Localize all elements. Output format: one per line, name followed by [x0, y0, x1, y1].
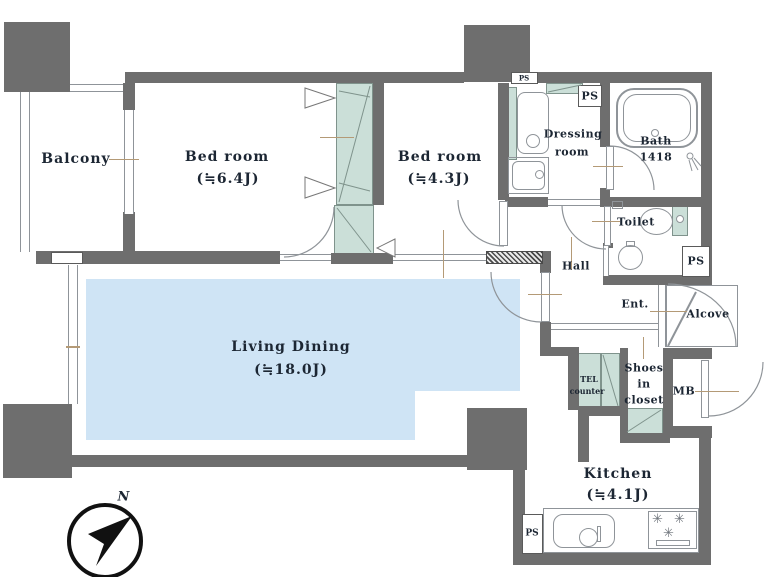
- floor-plan: ✳ ✳ ✳ N Balcony Bed room (≒6.4J) Bed roo…: [0, 0, 773, 577]
- wall-mb-left: [663, 348, 673, 437]
- kitchen-size: (≒4.1J): [587, 488, 650, 502]
- kitchen-label: Kitchen: [584, 467, 653, 481]
- dressing-label-line2: room: [555, 147, 589, 158]
- ps-label-toilet: PS: [687, 256, 704, 267]
- hall-label: Hall: [562, 261, 590, 272]
- kitchen-sink-basin: [579, 528, 598, 547]
- compass-north-label: N: [118, 491, 131, 504]
- living-size: (≒18.0J): [254, 363, 328, 377]
- bath-size: 1418: [640, 152, 673, 163]
- shoes-lower-line: [625, 408, 663, 434]
- closet-upper-lines: [336, 83, 373, 205]
- sliding-door-rail: [486, 251, 543, 264]
- leader-shoes-closet: [643, 337, 644, 359]
- entry-closet-line: [601, 353, 620, 408]
- wall-kitchen-bottom: [513, 553, 711, 565]
- wall-closet-right: [373, 83, 384, 205]
- ps-label-kitchen: PS: [525, 530, 538, 539]
- living-dining-floor: [86, 279, 415, 440]
- entrance-frame: [658, 285, 666, 347]
- dressing-shelf-line: [546, 83, 583, 94]
- bedroom1-size: (≒6.4J): [197, 172, 260, 186]
- door-arc-meter-box: [709, 362, 763, 416]
- washbasin-tap: [626, 241, 635, 247]
- meter-box-label: MB: [673, 386, 695, 397]
- closet-lower-lines: [334, 205, 374, 255]
- washbasin: [618, 245, 643, 270]
- door-arc-closet-lower: [284, 207, 334, 257]
- bath-label: Bath: [640, 136, 672, 147]
- toilet-tank-button: [676, 215, 684, 223]
- living-window-left: [68, 265, 78, 404]
- wall-bed1-left-stub-bottom: [123, 212, 135, 252]
- wall-top-bedrooms: [125, 72, 464, 83]
- balcony-rail: [20, 92, 30, 252]
- washbasin-edge: [603, 246, 609, 276]
- leader-closet: [320, 137, 354, 138]
- shoes-closet-label-line3: closet: [624, 395, 664, 406]
- shoes-closet-label-line2: in: [637, 379, 650, 390]
- wall-kitchen-top-left: [578, 406, 589, 462]
- compass-needle-icon: [88, 516, 132, 566]
- pillar-center: [467, 408, 527, 470]
- opening-bedroom2-living: [393, 254, 488, 261]
- wall-bed1-left-stub-top: [123, 83, 135, 110]
- alcove-label: Alcove: [686, 309, 729, 320]
- leader-hall-door: [528, 294, 562, 295]
- bedroom2-label: Bed room: [398, 150, 482, 164]
- wall-kitchen-right: [699, 426, 711, 565]
- living-label: Living Dining: [231, 340, 350, 354]
- leader-meter-box: [695, 391, 739, 392]
- vanity-basin: [526, 134, 540, 148]
- leader-alcove: [650, 311, 687, 312]
- balcony-top-connector: [70, 84, 123, 92]
- tel-counter-label-line1: TEL: [580, 375, 598, 383]
- folding-door-icon: [375, 236, 397, 258]
- ps-label-wall-small: PS: [519, 75, 529, 82]
- washing-machine-dial: [535, 170, 544, 179]
- door-leaf-hall-living: [541, 272, 550, 322]
- leader-bath-door: [593, 166, 623, 167]
- dressing-label-line1: Dressing: [544, 129, 603, 140]
- toilet-label: Toilet: [617, 217, 655, 228]
- leader-living-window: [66, 346, 80, 348]
- folding-door-icon: [303, 174, 337, 200]
- wall-tel-left: [568, 353, 579, 410]
- pillar-bottom-left: [3, 404, 72, 478]
- bedroom1-window: [124, 110, 134, 214]
- leader-balcony: [109, 159, 139, 160]
- wall-hall-left-bottom: [540, 322, 551, 350]
- shoes-closet-label-line1: Shoes: [625, 363, 664, 374]
- wall-top-right: [530, 72, 712, 83]
- entrance-step: [551, 323, 658, 330]
- kitchen-faucet: [597, 526, 601, 542]
- leader-bedroom2-opening: [443, 230, 444, 278]
- door-arc-toilet: [562, 205, 606, 249]
- stove-burner-icon: ✳: [674, 513, 685, 526]
- balcony-gate: [51, 252, 83, 264]
- bedroom1-label: Bed room: [185, 150, 269, 164]
- stove-burner-icon: ✳: [663, 527, 674, 540]
- ps-label-dressing: PS: [581, 91, 598, 102]
- toilet-shelf: [612, 201, 623, 209]
- wall-living-south: [70, 455, 467, 467]
- door-arc-bedroom2: [458, 200, 504, 246]
- shower-icon: [684, 150, 702, 174]
- wall-balcony-end: [36, 251, 51, 264]
- compass: [60, 496, 152, 577]
- tel-counter-label-line2: counter: [570, 387, 605, 395]
- leader-toilet: [592, 221, 620, 222]
- bedroom2-size: (≒4.3J): [408, 172, 471, 186]
- folding-door-icon: [303, 85, 337, 109]
- door-leaf-meter-box: [701, 360, 709, 418]
- stove-burner-icon: ✳: [652, 513, 663, 526]
- wall-dressing-south-left: [505, 197, 548, 207]
- pillar-top-left: [4, 22, 70, 92]
- entrance-label: Ent.: [621, 299, 648, 310]
- door-arc-hall-living: [491, 272, 541, 322]
- balcony-label: Balcony: [41, 152, 110, 166]
